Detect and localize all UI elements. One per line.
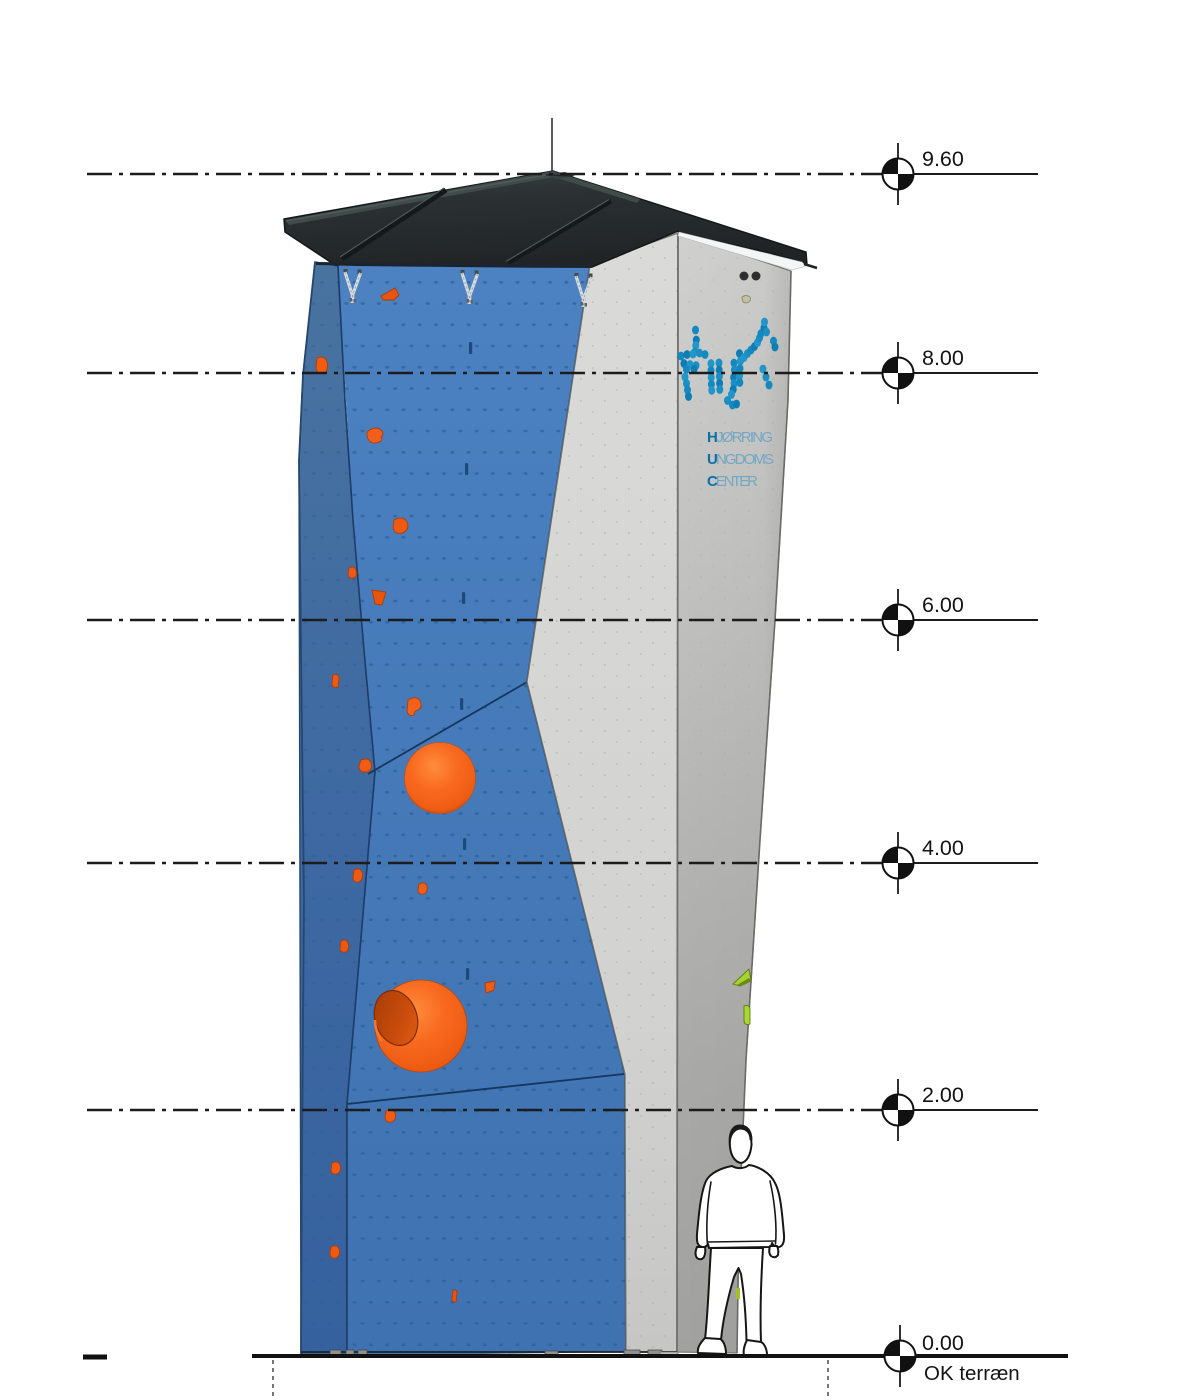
svg-text:2.00: 2.00 xyxy=(922,1083,964,1107)
svg-text:UNGDOMS: UNGDOMS xyxy=(707,451,774,468)
svg-text:6.00: 6.00 xyxy=(922,593,964,617)
svg-text:OK terræn: OK terræn xyxy=(924,1362,1020,1385)
svg-text:9.60: 9.60 xyxy=(922,147,964,171)
svg-text:0.00: 0.00 xyxy=(922,1331,964,1355)
svg-text:8.00: 8.00 xyxy=(922,346,964,370)
svg-text:CENTER: CENTER xyxy=(707,473,758,490)
svg-text:4.00: 4.00 xyxy=(922,836,964,860)
svg-text:HJØRRING: HJØRRING xyxy=(707,429,773,446)
